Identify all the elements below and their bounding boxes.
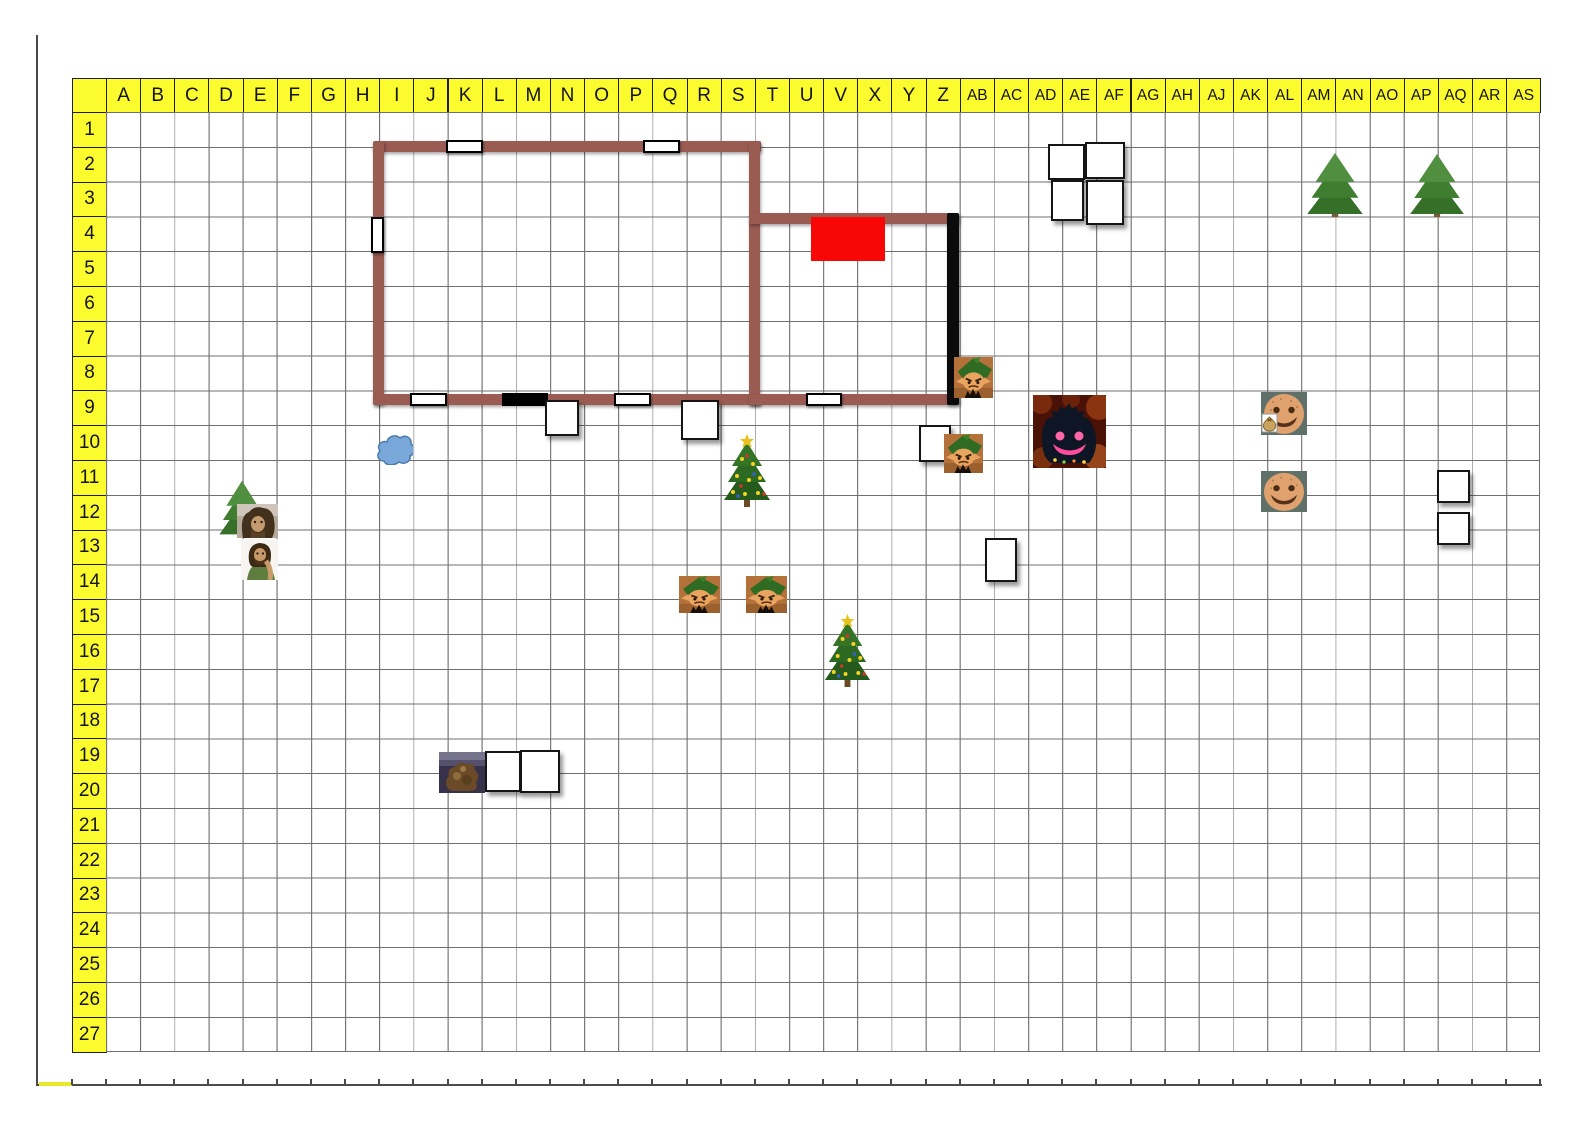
- token-square-AQ11[interactable]: [1437, 470, 1470, 503]
- elf-token-AB10[interactable]: [944, 434, 983, 473]
- ruler-tick: [959, 1079, 961, 1085]
- ruler-tick: [1437, 1079, 1439, 1085]
- column-header-D[interactable]: D: [208, 78, 243, 113]
- column-header-H[interactable]: H: [345, 78, 380, 113]
- blue-cloud-marker[interactable]: [376, 431, 413, 465]
- column-header-AE[interactable]: AE: [1062, 78, 1097, 113]
- row-header-21[interactable]: 21: [72, 808, 107, 844]
- column-header-E[interactable]: E: [243, 78, 278, 113]
- row-header-2[interactable]: 2: [72, 147, 107, 183]
- column-header-AF[interactable]: AF: [1096, 78, 1131, 113]
- ruler-corner-yellow-segment: [39, 1082, 72, 1086]
- column-header-T[interactable]: T: [755, 78, 790, 113]
- token-square-AE2[interactable]: [1048, 144, 1085, 180]
- row-header-12[interactable]: 12: [72, 495, 107, 531]
- column-header-M[interactable]: M: [516, 78, 551, 113]
- row-header-15[interactable]: 15: [72, 599, 107, 635]
- row-header-24[interactable]: 24: [72, 912, 107, 948]
- token-square-M19[interactable]: [520, 750, 560, 793]
- row-header-4[interactable]: 4: [72, 216, 107, 252]
- column-header-AO[interactable]: AO: [1370, 78, 1405, 113]
- ruler-tick: [139, 1079, 141, 1085]
- column-header-AR[interactable]: AR: [1472, 78, 1507, 113]
- token-square-R9[interactable]: [681, 400, 719, 440]
- column-header-AN[interactable]: AN: [1335, 78, 1370, 113]
- wall-main-room-right: [749, 141, 760, 405]
- column-header-N[interactable]: N: [550, 78, 585, 113]
- column-header-AL[interactable]: AL: [1267, 78, 1302, 113]
- ruler-tick: [515, 1079, 517, 1085]
- column-header-AH[interactable]: AH: [1165, 78, 1200, 113]
- ruler-tick: [1266, 1079, 1268, 1085]
- column-header-C[interactable]: C: [174, 78, 209, 113]
- dark-creature-K19[interactable]: [439, 752, 485, 793]
- column-header-AP[interactable]: AP: [1404, 78, 1439, 113]
- ruler-tick: [686, 1079, 688, 1085]
- column-header-AQ[interactable]: AQ: [1438, 78, 1473, 113]
- column-header-R[interactable]: R: [687, 78, 722, 113]
- wall-main-room-top: [373, 141, 761, 152]
- column-header-X[interactable]: X: [857, 78, 892, 113]
- column-header-L[interactable]: L: [482, 78, 517, 113]
- ruler-tick: [890, 1079, 892, 1085]
- door-bottom-J9[interactable]: [410, 393, 447, 406]
- ruler-tick: [378, 1079, 380, 1085]
- row-header-13[interactable]: 13: [72, 530, 107, 566]
- ruler-tick: [925, 1079, 927, 1085]
- row-header-6[interactable]: 6: [72, 286, 107, 322]
- column-header-A[interactable]: A: [106, 78, 141, 113]
- corner-header-cell[interactable]: [72, 78, 107, 113]
- row-header-25[interactable]: 25: [72, 947, 107, 983]
- elf-token-AB8[interactable]: [954, 357, 993, 398]
- pine-tree-AM2[interactable]: [1303, 151, 1367, 217]
- ruler-tick: [549, 1079, 551, 1085]
- ruler-tick: [1403, 1079, 1405, 1085]
- elf-token-T14[interactable]: [746, 576, 787, 613]
- row-header-17[interactable]: 17: [72, 669, 107, 705]
- ruler-tick: [1061, 1079, 1063, 1085]
- ruler-tick: [1095, 1079, 1097, 1085]
- ruler-tick: [1369, 1079, 1371, 1085]
- wall-annex-bottom: [749, 394, 959, 405]
- wall-main-room-left: [373, 141, 384, 405]
- row-header-7[interactable]: 7: [72, 321, 107, 357]
- door-top-K2[interactable]: [446, 140, 483, 153]
- ruler-tick: [207, 1079, 209, 1085]
- ruler-tick: [822, 1079, 824, 1085]
- row-header-9[interactable]: 9: [72, 390, 107, 426]
- column-header-AC[interactable]: AC: [994, 78, 1029, 113]
- row-header-20[interactable]: 20: [72, 773, 107, 809]
- row-header-3[interactable]: 3: [72, 182, 107, 218]
- ruler-tick: [1198, 1079, 1200, 1085]
- door-annex-V9[interactable]: [806, 393, 842, 406]
- ruler-tick: [1130, 1079, 1132, 1085]
- ruler-tick: [1300, 1079, 1302, 1085]
- token-square-AF3[interactable]: [1086, 180, 1124, 225]
- red-zone: [811, 217, 885, 261]
- ruler-left-line: [36, 35, 38, 1086]
- ruler-tick: [344, 1079, 346, 1085]
- xmas-tree-V15[interactable]: [821, 614, 874, 687]
- ruler-tick: [1471, 1079, 1473, 1085]
- row-header-1[interactable]: 1: [72, 112, 107, 148]
- row-header-18[interactable]: 18: [72, 704, 107, 740]
- row-header-14[interactable]: 14: [72, 564, 107, 600]
- token-square-AQ13[interactable]: [1437, 512, 1470, 545]
- row-header-11[interactable]: 11: [72, 460, 107, 496]
- door-top-Q2[interactable]: [643, 140, 680, 153]
- ruler-tick: [242, 1079, 244, 1085]
- row-header-16[interactable]: 16: [72, 634, 107, 670]
- ruler-tick: [310, 1079, 312, 1085]
- column-header-AD[interactable]: AD: [1028, 78, 1063, 113]
- ruler-tick: [173, 1079, 175, 1085]
- xmas-tree-S10[interactable]: [720, 434, 774, 507]
- ruler-tick: [856, 1079, 858, 1085]
- ruler-tick: [617, 1079, 619, 1085]
- ruler-tick: [1334, 1079, 1336, 1085]
- column-header-S[interactable]: S: [721, 78, 756, 113]
- column-header-P[interactable]: P: [618, 78, 653, 113]
- door-left-I4[interactable]: [371, 217, 384, 253]
- column-header-V[interactable]: V: [823, 78, 858, 113]
- ruler-tick: [1164, 1079, 1166, 1085]
- row-header-23[interactable]: 23: [72, 878, 107, 914]
- portrait-ranger-E13[interactable]: [241, 539, 278, 580]
- column-header-Z[interactable]: Z: [926, 78, 961, 113]
- ruler-tick: [447, 1079, 449, 1085]
- column-header-G[interactable]: G: [311, 78, 346, 113]
- column-header-F[interactable]: F: [277, 78, 312, 113]
- column-header-U[interactable]: U: [789, 78, 824, 113]
- gingerbread-token-AL11[interactable]: [1261, 471, 1307, 512]
- ruler-tick: [651, 1079, 653, 1085]
- column-header-Q[interactable]: Q: [652, 78, 687, 113]
- row-header-26[interactable]: 26: [72, 982, 107, 1018]
- ruler-tick: [1505, 1079, 1507, 1085]
- portrait-wildman-E12[interactable]: [237, 504, 278, 538]
- gingerbread-token-AL9[interactable]: [1261, 392, 1307, 435]
- ruler-tick: [1027, 1079, 1029, 1085]
- column-header-O[interactable]: O: [584, 78, 619, 113]
- row-header-8[interactable]: 8: [72, 356, 107, 392]
- door-bottom-P9[interactable]: [614, 393, 651, 406]
- token-square-AF2[interactable]: [1085, 142, 1125, 179]
- ruler-tick: [71, 1079, 73, 1085]
- ruler-tick: [788, 1079, 790, 1085]
- ruler-tick: [276, 1079, 278, 1085]
- row-header-10[interactable]: 10: [72, 425, 107, 461]
- ruler-tick: [105, 1079, 107, 1085]
- column-header-AB[interactable]: AB: [960, 78, 995, 113]
- shadow-monster-AD9[interactable]: [1033, 395, 1106, 468]
- pine-tree-AP2[interactable]: [1406, 152, 1468, 217]
- ruler-tick: [481, 1079, 483, 1085]
- column-header-K[interactable]: K: [448, 78, 483, 113]
- elf-token-R14[interactable]: [679, 576, 720, 613]
- ruler-tick: [583, 1079, 585, 1085]
- column-header-I[interactable]: I: [379, 78, 414, 113]
- row-header-19[interactable]: 19: [72, 738, 107, 774]
- ruler-tick: [754, 1079, 756, 1085]
- ruler-tick: [412, 1079, 414, 1085]
- map-canvas: ABCDEFGHIJKLMNOPQRSTUVXYZABACADAEAFAGAHA…: [0, 0, 1588, 1123]
- token-square-N9[interactable]: [545, 400, 579, 436]
- token-square-AC13[interactable]: [985, 538, 1017, 582]
- row-header-5[interactable]: 5: [72, 251, 107, 287]
- row-header-22[interactable]: 22: [72, 843, 107, 879]
- ruler-tick: [1232, 1079, 1234, 1085]
- column-header-J[interactable]: J: [413, 78, 448, 113]
- row-header-27[interactable]: 27: [72, 1017, 107, 1053]
- token-square-L19[interactable]: [485, 751, 521, 792]
- column-header-AJ[interactable]: AJ: [1199, 78, 1234, 113]
- column-header-AK[interactable]: AK: [1233, 78, 1268, 113]
- column-header-B[interactable]: B: [140, 78, 175, 113]
- column-header-Y[interactable]: Y: [891, 78, 926, 113]
- black-bar-M9: [502, 393, 548, 406]
- token-square-AE3[interactable]: [1051, 180, 1084, 221]
- column-header-AS[interactable]: AS: [1506, 78, 1541, 113]
- column-header-AM[interactable]: AM: [1301, 78, 1336, 113]
- ruler-tick: [720, 1079, 722, 1085]
- ruler-tick: [993, 1079, 995, 1085]
- column-header-AG[interactable]: AG: [1131, 78, 1166, 113]
- ruler-tick: [1539, 1079, 1541, 1085]
